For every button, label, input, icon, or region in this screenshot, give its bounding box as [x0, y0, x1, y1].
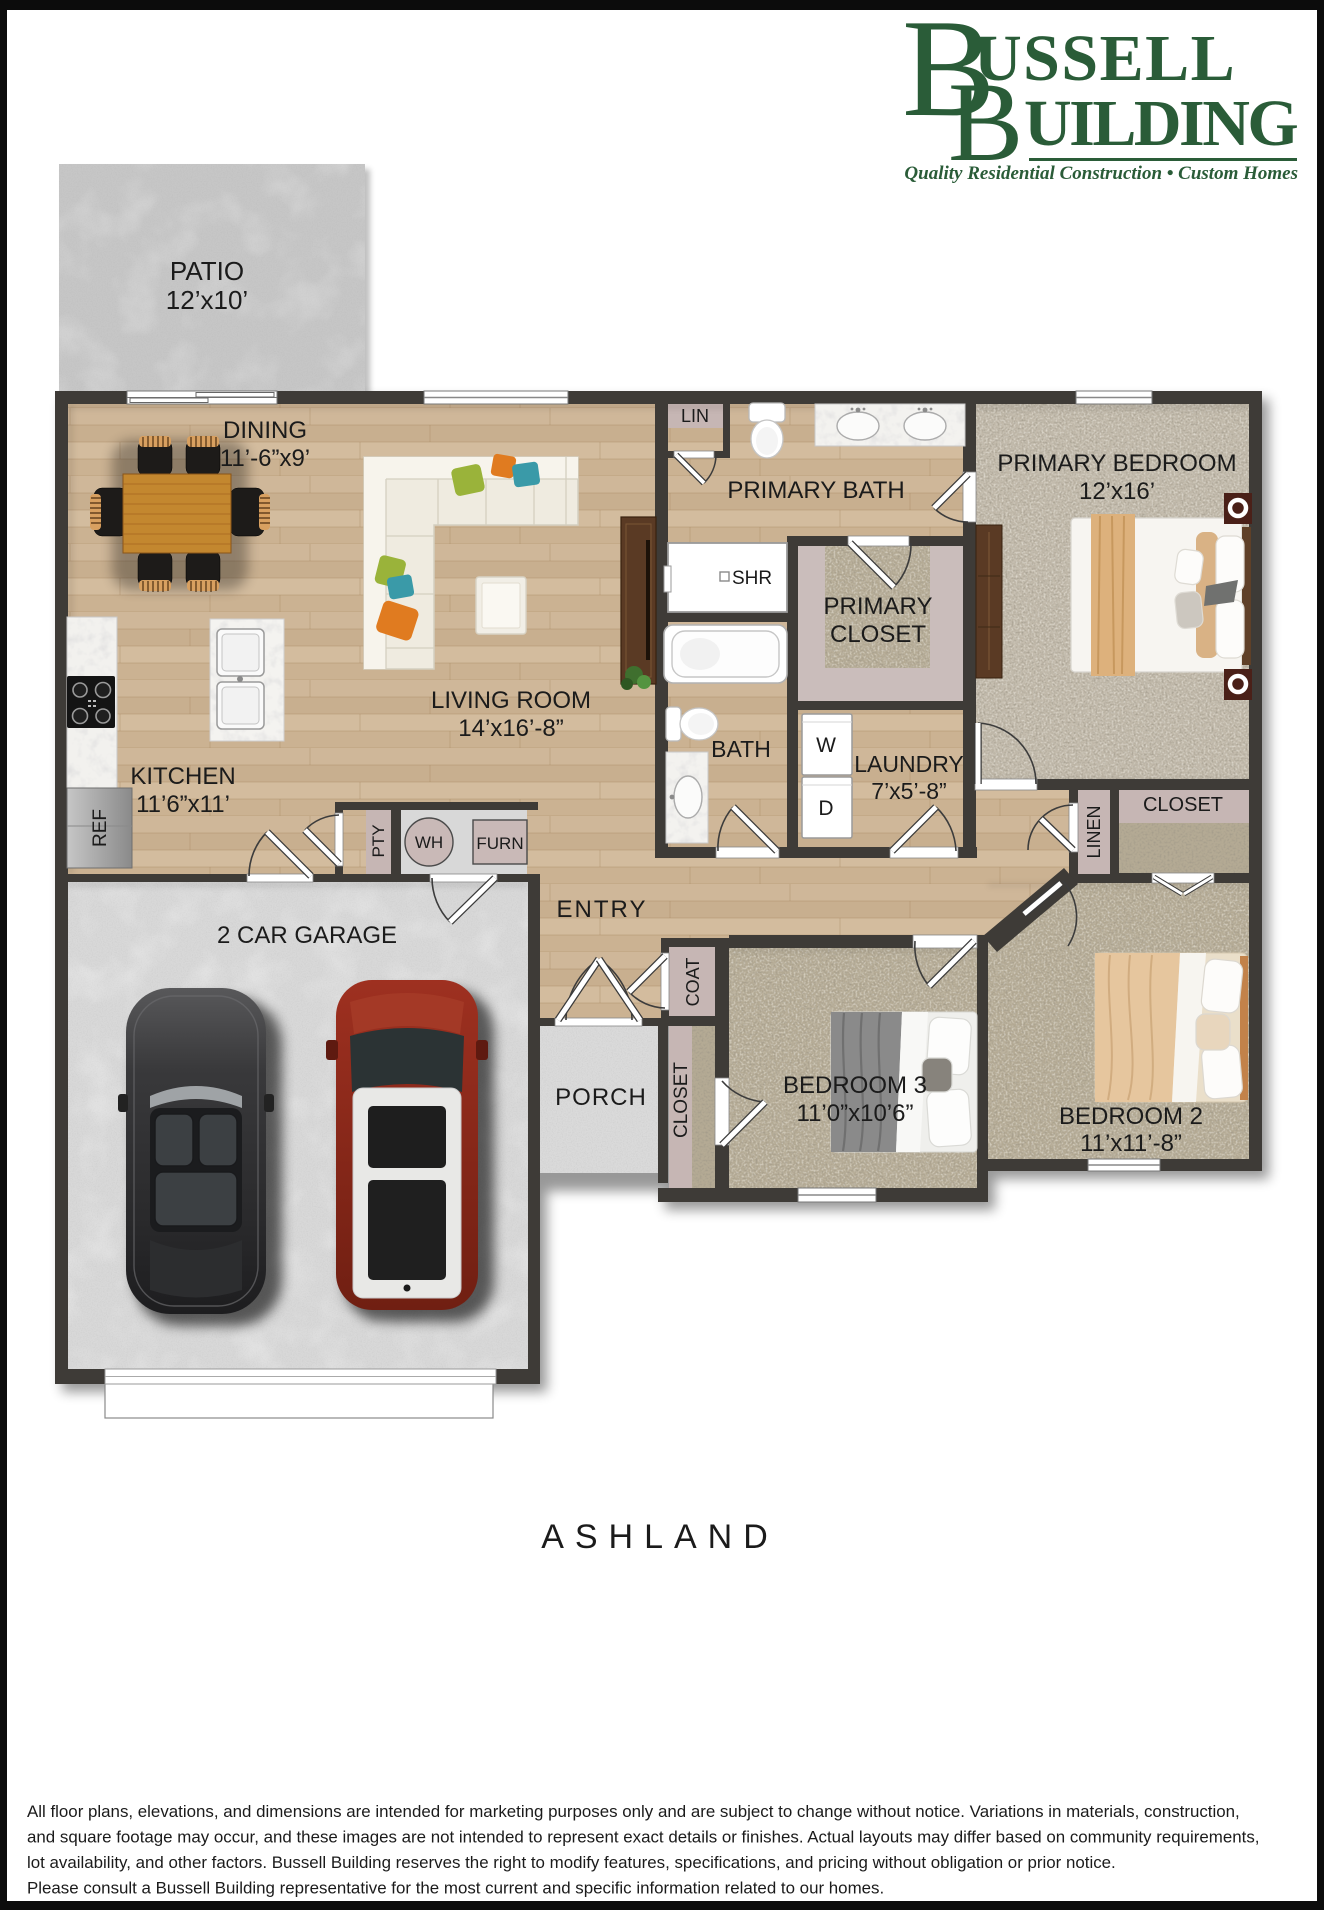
svg-text:LINEN: LINEN [1084, 805, 1104, 858]
svg-text:CLOSET: CLOSET [830, 621, 926, 648]
svg-text:Please consult a Bussell Build: Please consult a Bussell Building repres… [27, 1879, 884, 1898]
svg-text:2 CAR GARAGE: 2 CAR GARAGE [217, 922, 397, 949]
svg-text:11’-6”x9’: 11’-6”x9’ [220, 445, 310, 472]
svg-text:REF: REF [90, 809, 111, 847]
svg-text:D: D [818, 797, 833, 820]
svg-text:BEDROOM 2: BEDROOM 2 [1059, 1103, 1203, 1130]
svg-text:CLOSET: CLOSET [1143, 794, 1223, 816]
svg-text:BEDROOM 3: BEDROOM 3 [783, 1072, 927, 1099]
svg-text:PTY: PTY [369, 824, 388, 857]
svg-text:PORCH: PORCH [555, 1084, 647, 1111]
svg-text:11’6”x11’: 11’6”x11’ [136, 791, 230, 818]
svg-text:12’x10’: 12’x10’ [166, 285, 248, 315]
svg-text:11’0”x10’6”: 11’0”x10’6” [797, 1100, 914, 1127]
svg-text:UILDING: UILDING [1024, 87, 1297, 160]
svg-text:12’x16’: 12’x16’ [1079, 478, 1155, 505]
svg-text:BATH: BATH [711, 736, 771, 762]
svg-text:CLOSET: CLOSET [671, 1062, 692, 1138]
svg-text:7’x5’-8”: 7’x5’-8” [871, 778, 946, 804]
svg-text:LIN: LIN [681, 406, 709, 426]
svg-text:LIVING ROOM: LIVING ROOM [431, 687, 591, 714]
svg-text:PRIMARY BATH: PRIMARY BATH [727, 477, 904, 504]
svg-text:All floor plans, elevations, a: All floor plans, elevations, and dimensi… [27, 1802, 1240, 1821]
svg-text:PRIMARY: PRIMARY [824, 593, 933, 620]
svg-text:COAT: COAT [683, 958, 703, 1007]
svg-text:lot availability, and other fa: lot availability, and other factors. Bus… [27, 1853, 1116, 1872]
svg-text:WH: WH [415, 833, 443, 852]
svg-text:11’x11’-8”: 11’x11’-8” [1080, 1130, 1182, 1157]
svg-text:W: W [816, 734, 836, 757]
svg-text:FURN: FURN [476, 834, 523, 853]
svg-text:KITCHEN: KITCHEN [130, 763, 235, 790]
svg-text:14’x16’-8”: 14’x16’-8” [458, 715, 563, 742]
svg-text:ASHLAND: ASHLAND [541, 1518, 779, 1556]
svg-text:and square footage may occur,: and square footage may occur, and these … [27, 1828, 1259, 1847]
svg-text:PATIO: PATIO [170, 256, 244, 286]
svg-text:ENTRY: ENTRY [557, 896, 648, 923]
svg-text:DINING: DINING [223, 417, 307, 444]
svg-text:PRIMARY BEDROOM: PRIMARY BEDROOM [997, 450, 1236, 477]
svg-text:LAUNDRY: LAUNDRY [854, 751, 964, 777]
svg-text:Quality Residential Constructi: Quality Residential Construction • Custo… [904, 163, 1298, 184]
svg-text:SHR: SHR [732, 568, 772, 589]
